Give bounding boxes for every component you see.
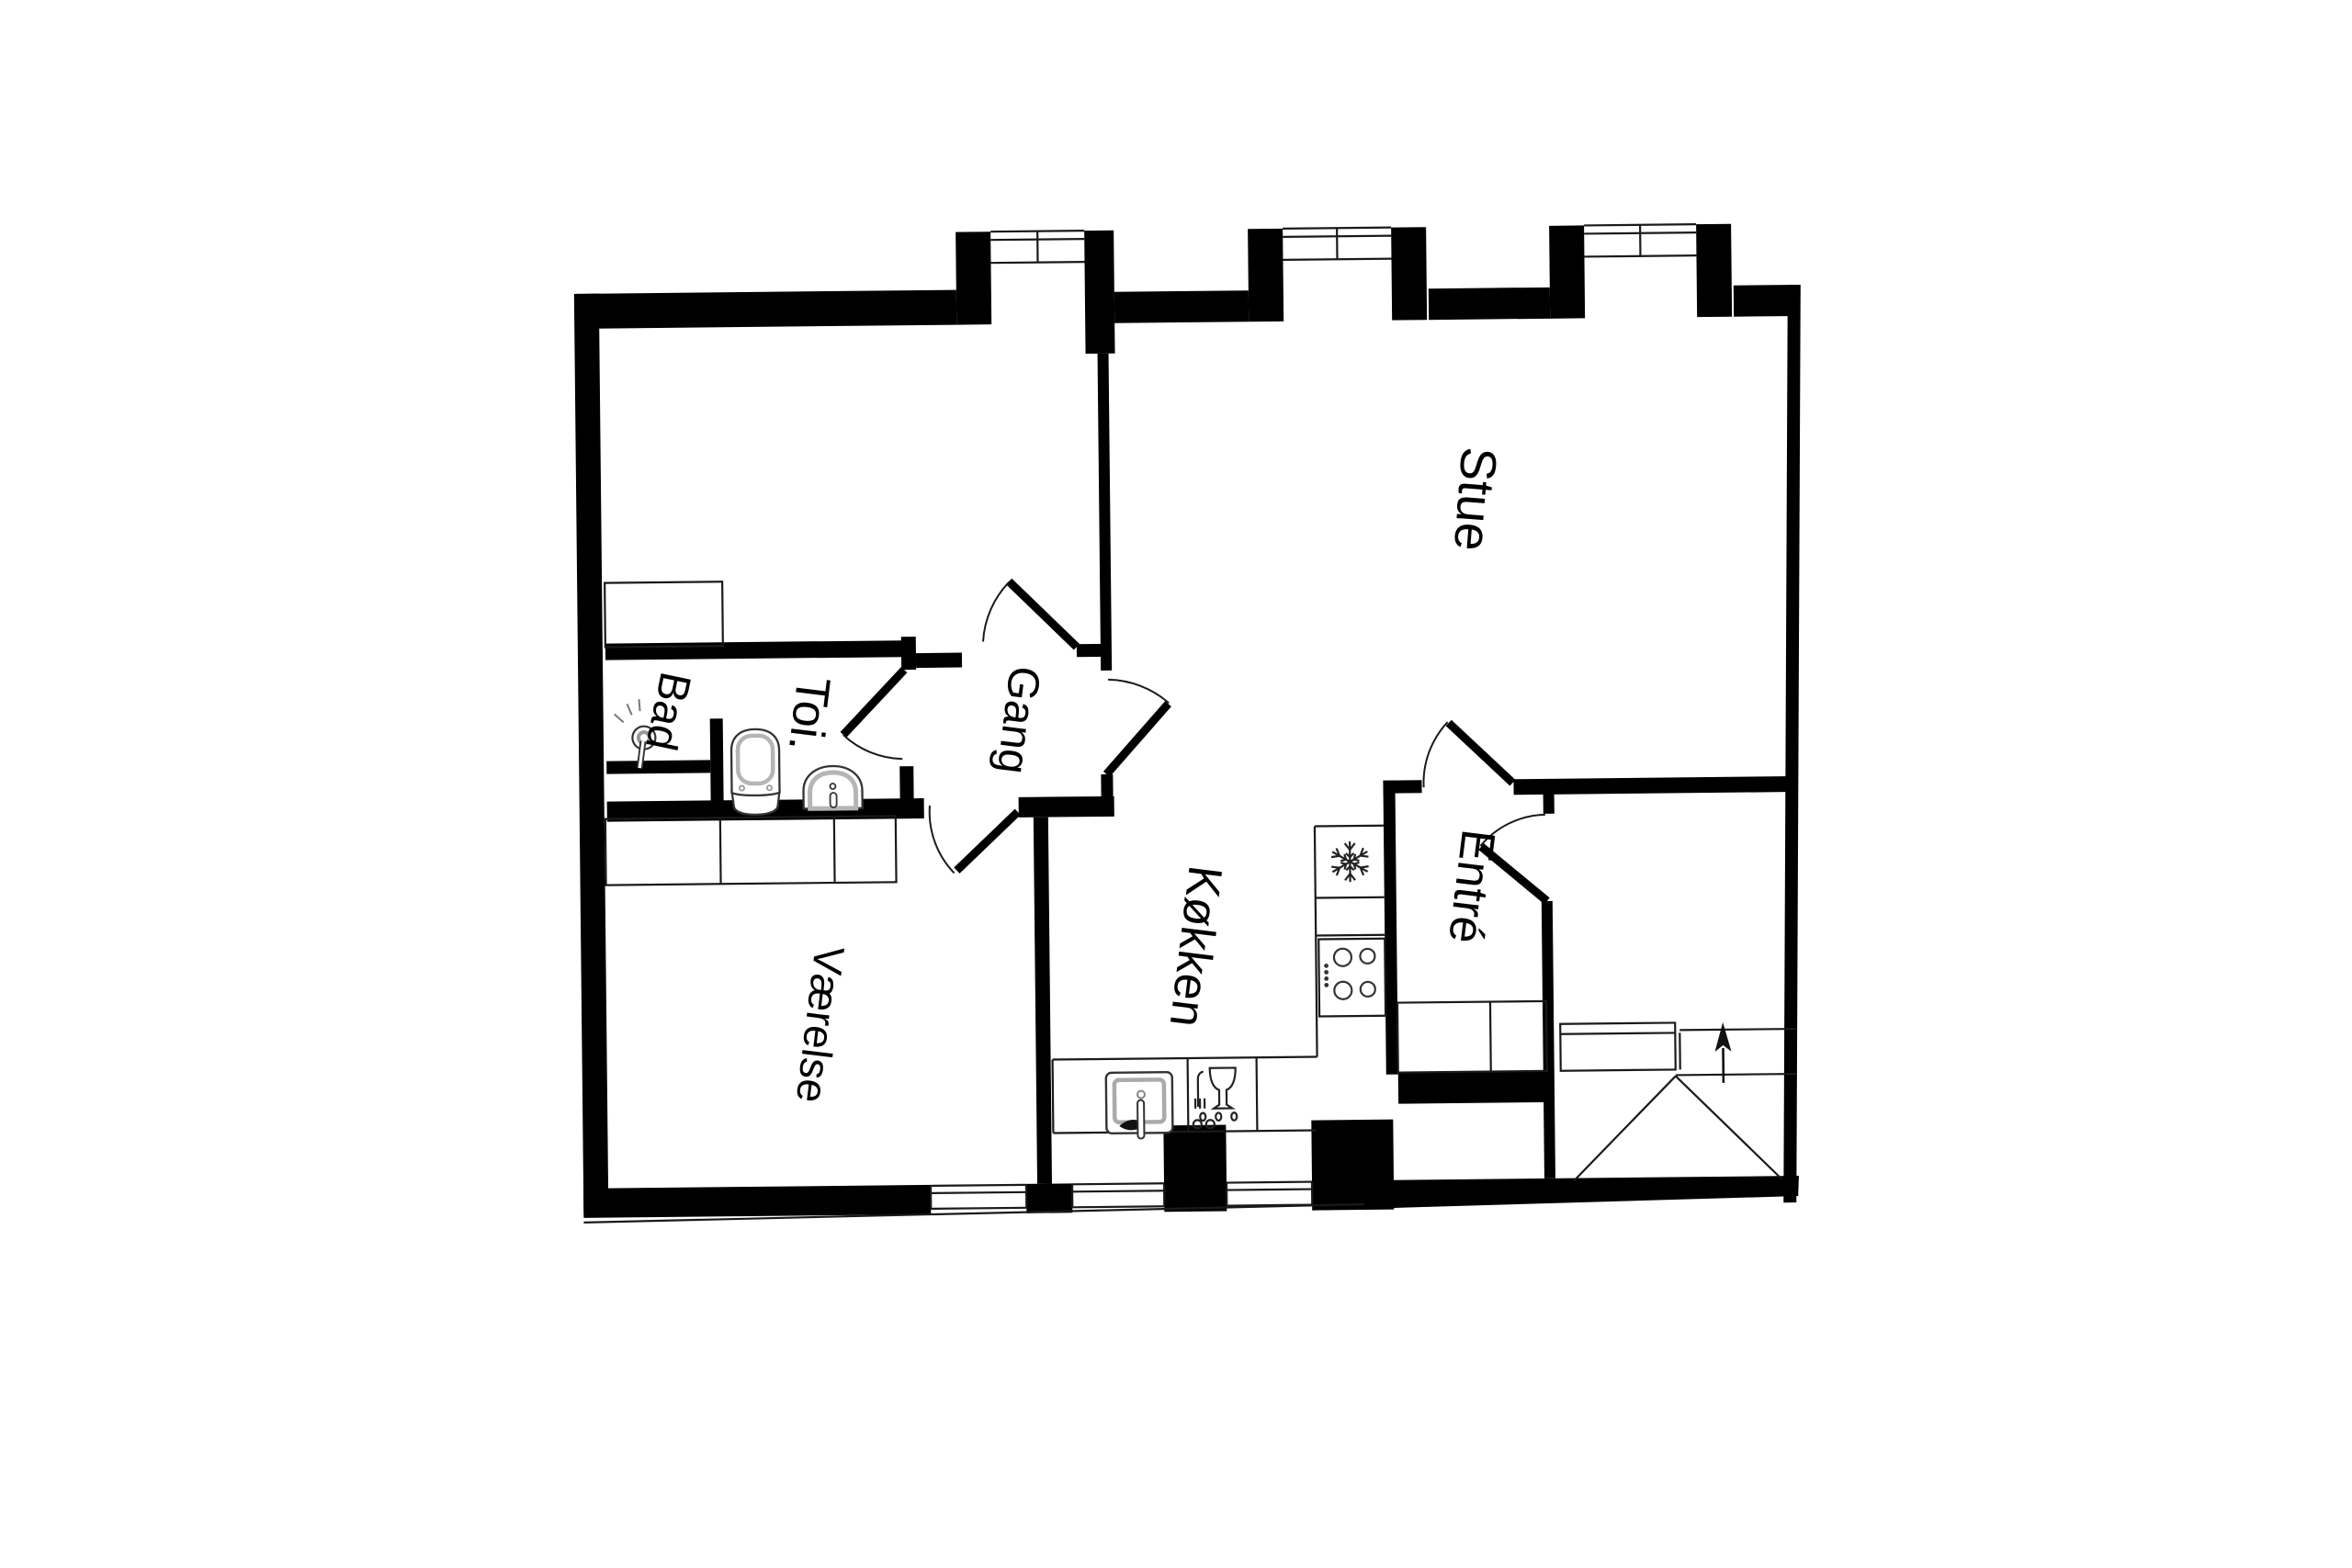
svg-text:Toi.: Toi.: [778, 674, 840, 754]
svg-text:Stue: Stue: [1443, 446, 1508, 554]
